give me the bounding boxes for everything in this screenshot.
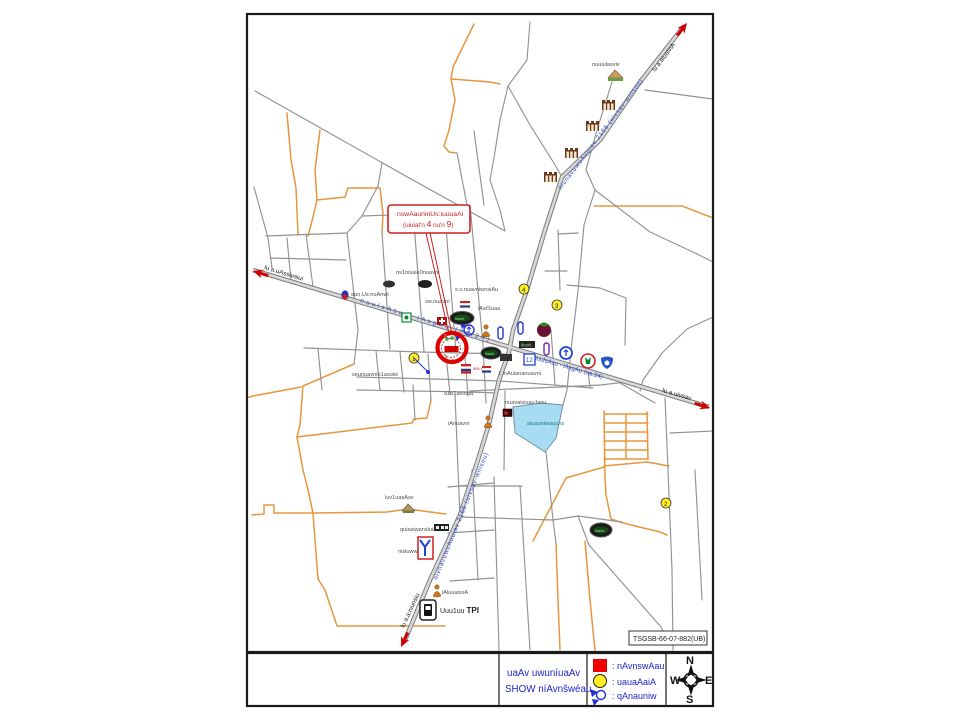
svg-text:: uauaAaiA: : uauaAaiA [612,677,656,687]
svg-text:ikank: ikank [595,528,604,533]
svg-text:ikank: ikank [521,343,532,348]
svg-text:N: N [686,655,694,667]
svg-text:SHOW níAvnšwéau: SHOW níAvnšwéau [505,684,591,695]
svg-text:seunuavnin1asuiw: seunuavnin1asuiw [352,372,399,378]
svg-text:nuavaisisau:lsou: nuavaisisau:lsou [505,400,546,406]
svg-text:ns1nisaie0nuavni: ns1nisaie0nuavni [396,270,439,276]
svg-text:a1u1asiuua: a1u1asiuua [444,391,474,397]
svg-text:1 inAuiananuavni: 1 inAuiananuavni [498,371,541,377]
svg-text:S: S [686,694,693,706]
svg-text:iAluuaissA: iAluuaissA [442,590,468,596]
svg-text:: qAnauniw: : qAnauniw [612,691,657,701]
svg-text:nswAauninUs:iuuuaAi: nswAauninUs:iuuuaAi [397,211,464,218]
svg-text:nuuiulasviv: nuuiulasviv [592,62,620,68]
svg-text:iAsiSuaa: iAsiSuaa [478,306,501,312]
svg-text:: nAvnswAau: : nAvnswAau [612,661,664,671]
svg-text:E: E [705,675,712,687]
svg-text:iAnuavni: iAnuavni [448,421,469,427]
svg-text:aiuauniwauuns: aiuauniwauuns [527,421,565,427]
svg-text:TSGSB-66-07-882(UB): TSGSB-66-07-882(UB) [633,636,705,643]
svg-text:aun.Us:nuAnwi: aun.Us:nuAnwi [351,292,389,298]
svg-text:quiasiwansluias: quiasiwansluias [400,527,439,533]
svg-text:Uuu1uu TPI: Uuu1uu TPI [440,606,479,615]
svg-text:s.s.nuavniwnsiAu: s.s.nuavniwnsiAu [455,287,498,293]
svg-text:uaAv uwuníuaAv: uaAv uwuníuaAv [507,668,580,679]
svg-text:ikank: ikank [455,316,464,321]
svg-text:na.2: na.2 [445,358,454,363]
svg-text:12: 12 [526,358,533,364]
svg-text:luv1uasAsv: luv1uasAsv [385,495,414,501]
svg-text:ikank: ikank [485,351,494,356]
